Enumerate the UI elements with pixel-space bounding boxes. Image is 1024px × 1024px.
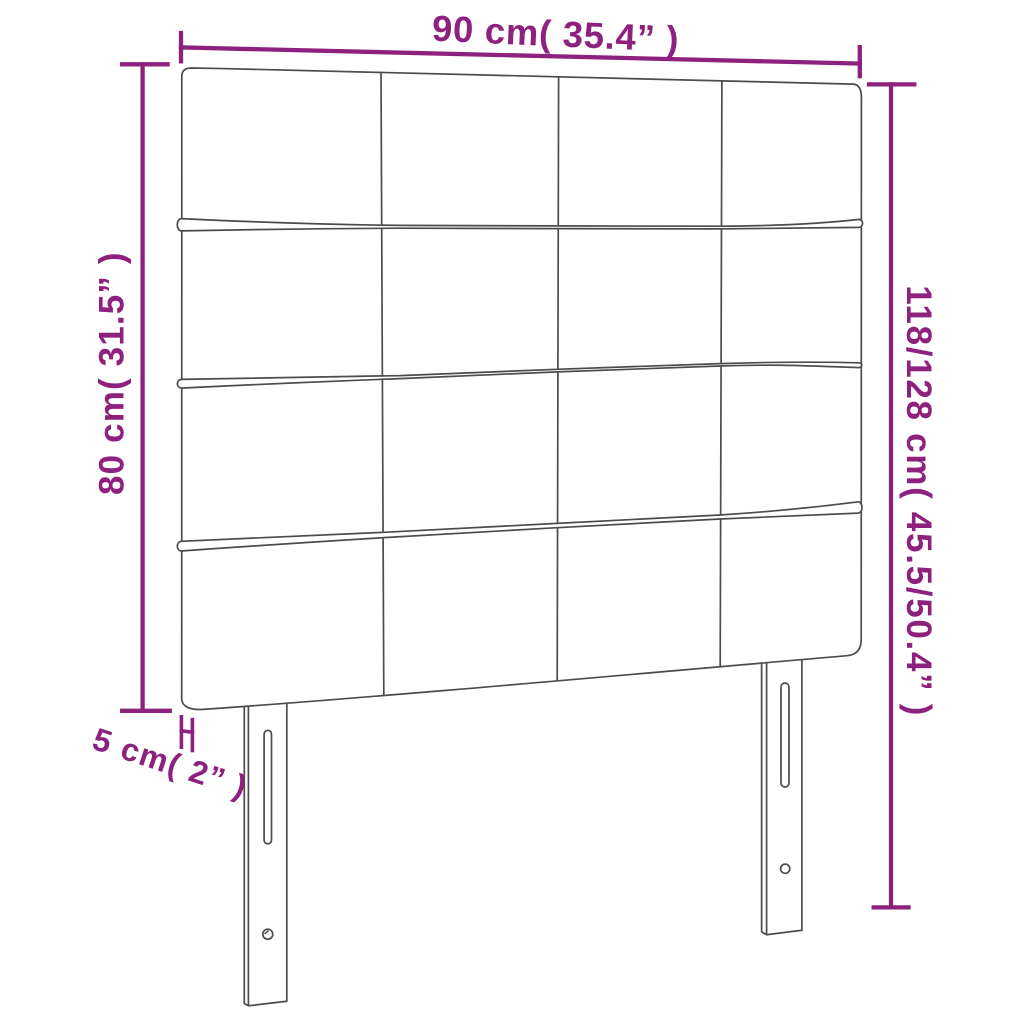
svg-text:80 cm( 31.5” ): 80 cm( 31.5” ) <box>93 251 132 495</box>
svg-text:118/128 cm( 45.5/50.4” ): 118/128 cm( 45.5/50.4” ) <box>899 285 938 717</box>
